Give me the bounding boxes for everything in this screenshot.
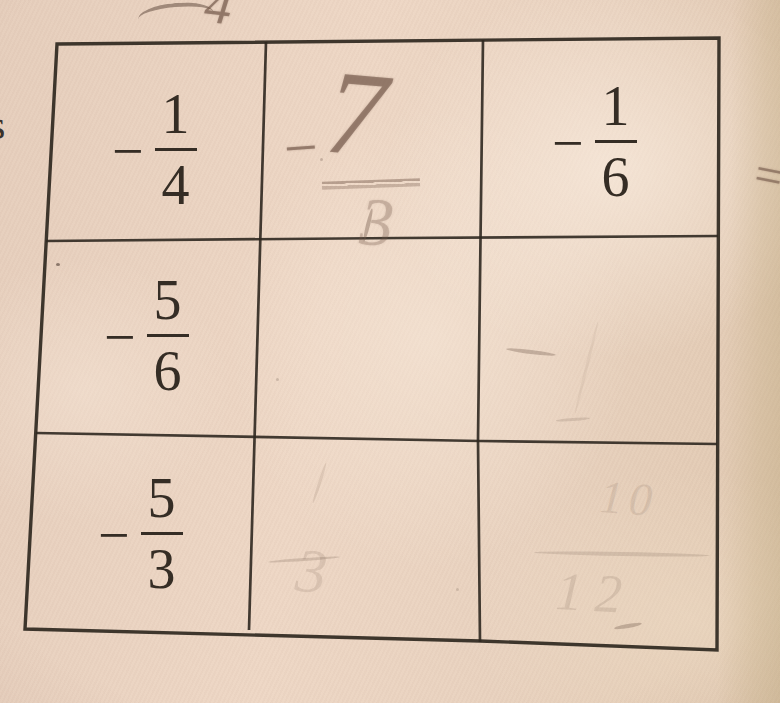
minus-sign: − <box>112 123 144 179</box>
numerator: 5 <box>141 470 183 535</box>
cell-r1c1-fraction: − 1 4 <box>112 86 197 213</box>
left-edge-letter: s <box>0 104 5 146</box>
erased-digit-r3c2: 3 <box>293 539 329 603</box>
fraction-stack: 5 6 <box>147 272 189 399</box>
cell-r2c1-fraction: − 5 6 <box>104 272 189 399</box>
minus-sign: − <box>104 309 136 365</box>
erased-numerator-r3c3: 10 <box>598 474 659 524</box>
denominator: 6 <box>147 337 189 399</box>
worksheet-photo: − 1 4 − 7 3 − 1 6 − 5 6 − 5 3 <box>0 0 780 703</box>
denominator: 3 <box>141 535 183 597</box>
cell-r3c1-fraction: − 5 3 <box>98 470 183 597</box>
fraction-stack: 1 6 <box>595 78 637 205</box>
minus-sign: − <box>552 115 584 171</box>
pencil-numerator: 7 <box>321 52 391 177</box>
fraction-stack: 1 4 <box>155 86 197 213</box>
cell-r1c2-pencil-fraction: − 7 3 <box>280 70 460 270</box>
numerator: 1 <box>155 86 197 151</box>
pencil-denominator: 3 <box>358 187 396 257</box>
cell-r1c3-fraction: − 1 6 <box>552 78 637 205</box>
paper-speck <box>56 263 60 266</box>
denominator: 4 <box>155 151 197 213</box>
paper-speck <box>320 158 323 161</box>
numerator: 1 <box>595 78 637 143</box>
denominator: 6 <box>595 143 637 205</box>
pencil-minus-sign: − <box>278 117 323 180</box>
paper-speck <box>276 378 279 381</box>
erased-denominator-r3c3: 12 <box>555 564 636 622</box>
fraction-stack: 5 3 <box>141 470 183 597</box>
numerator: 5 <box>147 272 189 337</box>
minus-sign: − <box>98 507 130 563</box>
paper-speck <box>456 588 459 591</box>
